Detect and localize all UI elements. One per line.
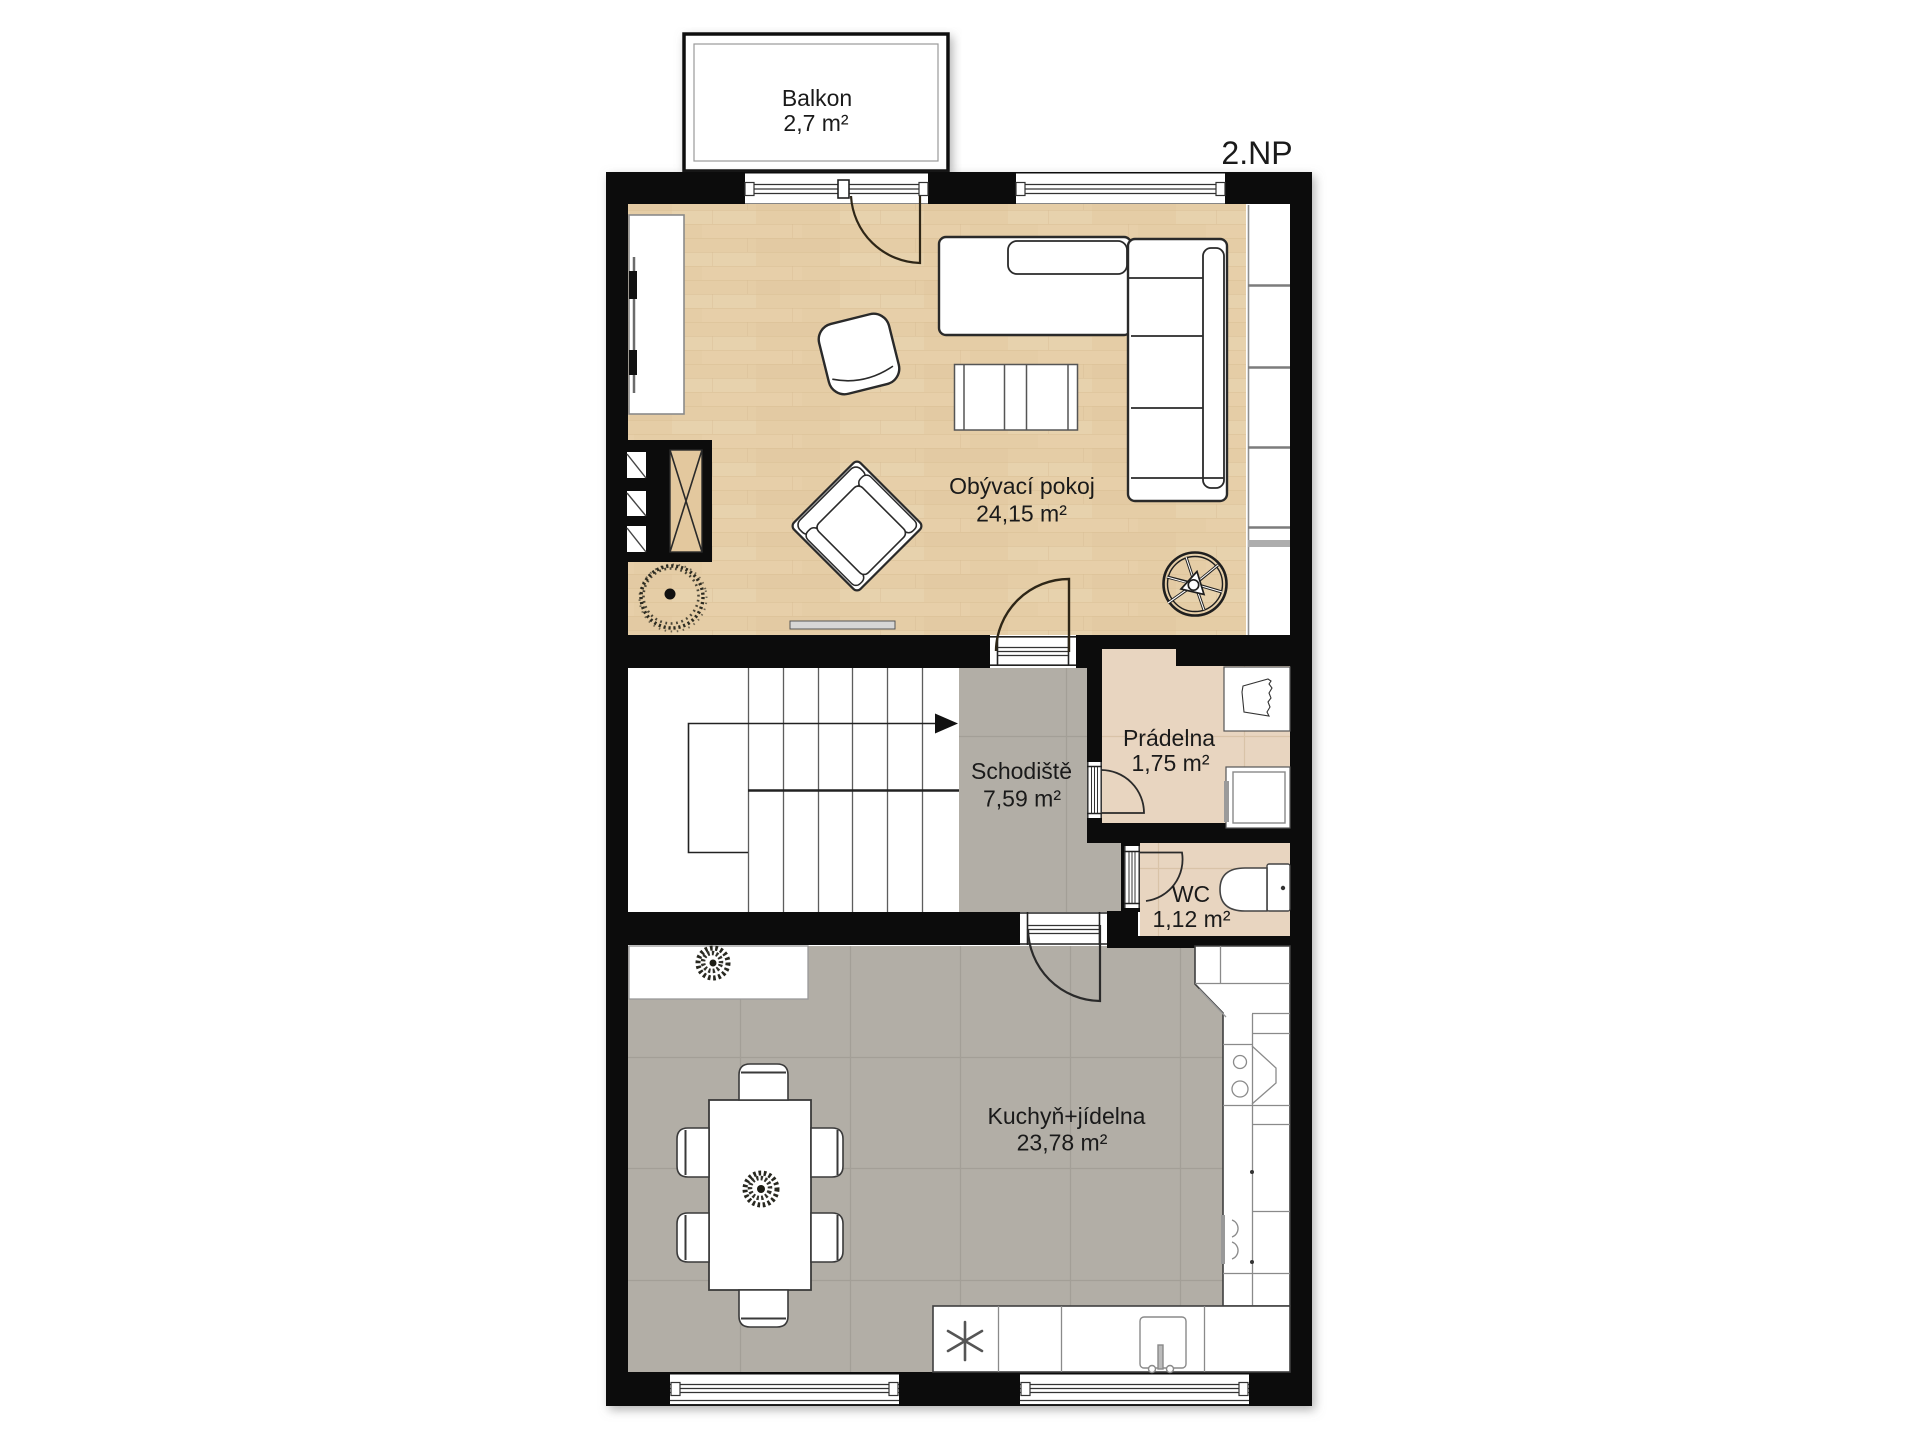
svg-text:7,59 m²: 7,59 m² <box>983 786 1061 812</box>
svg-text:2,7 m²: 2,7 m² <box>783 110 849 136</box>
svg-text:23,78 m²: 23,78 m² <box>1017 1130 1108 1156</box>
svg-text:1,75 m²: 1,75 m² <box>1132 750 1210 776</box>
svg-text:24,15 m²: 24,15 m² <box>976 501 1067 527</box>
svg-text:WC: WC <box>1172 881 1210 907</box>
svg-text:Prádelna: Prádelna <box>1123 725 1215 751</box>
svg-text:2.NP: 2.NP <box>1221 135 1292 171</box>
svg-text:Schodiště: Schodiště <box>971 758 1072 784</box>
svg-text:Obývací pokoj: Obývací pokoj <box>949 473 1095 499</box>
svg-text:1,12 m²: 1,12 m² <box>1153 906 1231 932</box>
svg-text:Balkon: Balkon <box>782 85 852 111</box>
svg-text:Kuchyň+jídelna: Kuchyň+jídelna <box>988 1103 1146 1129</box>
